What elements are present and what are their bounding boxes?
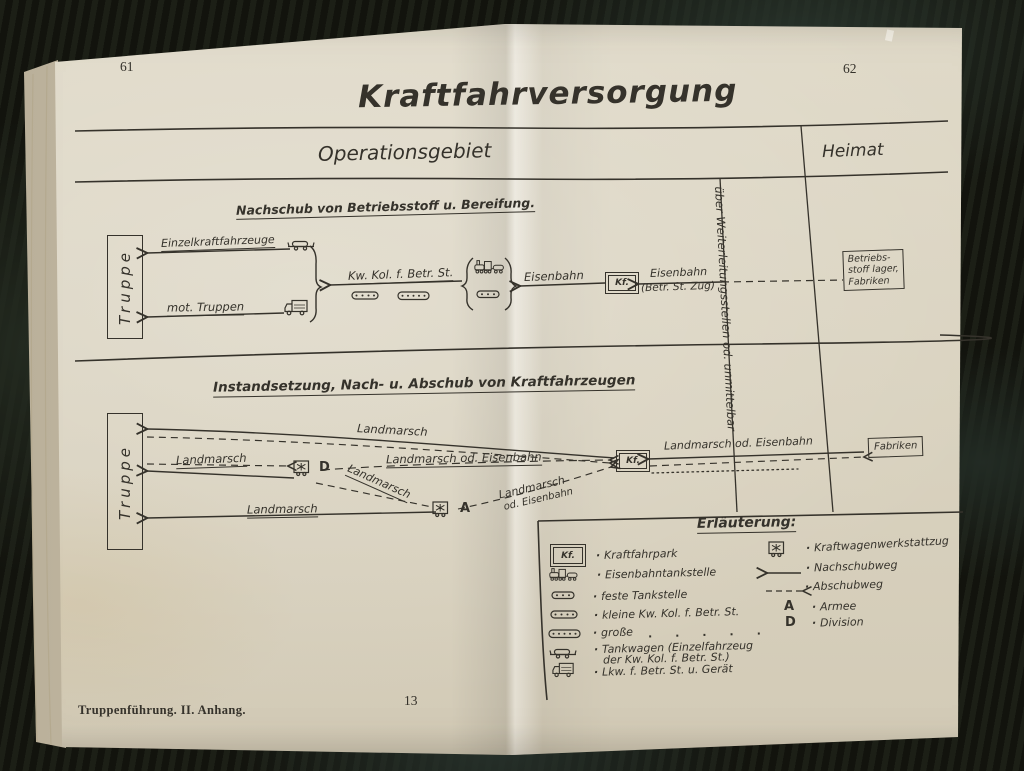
legend-item-armee: Armee xyxy=(812,599,857,613)
landmarsch-od-eisenbahn-label: Landmarsch od. Eisenbahn xyxy=(386,450,542,469)
legend-rail-tank-icon xyxy=(550,569,577,581)
legend-tank-wagon-icon xyxy=(550,650,576,659)
landmarsch-bottom-label: Landmarsch xyxy=(247,501,318,518)
rail-tank-station-icon xyxy=(475,261,504,273)
legend-workshop-train-icon xyxy=(769,542,784,557)
mot-truppen-label: mot. Truppen xyxy=(167,299,244,316)
large-column-icon xyxy=(398,292,429,300)
kraftfahrpark-box-1: Kf. xyxy=(608,275,636,291)
legend-item-division: Division xyxy=(812,615,864,629)
page-number-left: 61 xyxy=(120,59,134,75)
truppe-box-2: Truppe xyxy=(107,413,143,550)
truppe-label-2: Truppe xyxy=(116,444,134,520)
betr-st-zug-label: (Betr. St. Zug) xyxy=(641,280,715,295)
betriebsstofflager-box: Betriebs- stoff lager, Fabriken xyxy=(842,249,904,291)
page-title: Kraftfahrversorgung xyxy=(358,73,738,116)
section1-routes xyxy=(147,246,843,322)
legend-army-letter: A xyxy=(784,599,794,614)
legend-division-letter: D xyxy=(785,615,796,630)
fabriken-box: Fabriken xyxy=(868,436,924,458)
workshop-train-icon-division xyxy=(294,461,309,476)
legend-item-feste-tankstelle: feste Tankstelle xyxy=(593,588,688,603)
footer-sheet-number: 13 xyxy=(404,693,418,709)
footer-imprint: Truppenführung. II. Anhang. xyxy=(78,703,246,718)
eisenbahn-label-1: Eisenbahn xyxy=(524,268,584,284)
legend-item-kraftfahrpark: Kraftfahrpark xyxy=(596,547,678,562)
legend-kraftfahrpark-icon: Kf. xyxy=(553,547,583,564)
legend-heading: Erläuterung: xyxy=(697,514,797,534)
small-column-icon xyxy=(352,292,378,299)
legend-truck-icon xyxy=(553,663,573,676)
eisenbahn-zug-label: Eisenbahn xyxy=(650,265,708,280)
kraftfahrpark-box-2: Kf. xyxy=(619,453,647,469)
legend-large-column-icon xyxy=(549,630,580,638)
army-letter: A xyxy=(460,501,470,516)
division-letter: D xyxy=(319,460,330,475)
fixed-tank-station-icon xyxy=(477,291,499,298)
header-operationsgebiet: Operationsgebiet xyxy=(318,138,492,166)
page-edge-lines xyxy=(31,66,51,745)
truppe-label-1: Truppe xyxy=(116,249,134,325)
truppe-box-1: Truppe xyxy=(107,235,143,339)
truck-icon xyxy=(285,301,307,315)
source-box-line2: stoff lager, xyxy=(848,264,899,277)
page-number-right: 62 xyxy=(843,61,857,77)
header-heimat: Heimat xyxy=(822,140,884,162)
landmarsch-left-label: Landmarsch xyxy=(176,451,247,469)
photo-of-book-page: 61 62 Kraftfahrversorgung Operationsgebi… xyxy=(0,0,1024,771)
legend-fixed-tank-icon xyxy=(552,592,574,599)
legend-small-column-icon xyxy=(551,611,577,618)
source-box-line3: Fabriken xyxy=(848,275,899,288)
workshop-train-icon-army xyxy=(433,502,448,517)
tank-wagon-icon xyxy=(288,242,314,251)
legend-item-grosse: große xyxy=(593,625,633,639)
legend-item-abschubweg: Abschubweg xyxy=(805,578,883,594)
